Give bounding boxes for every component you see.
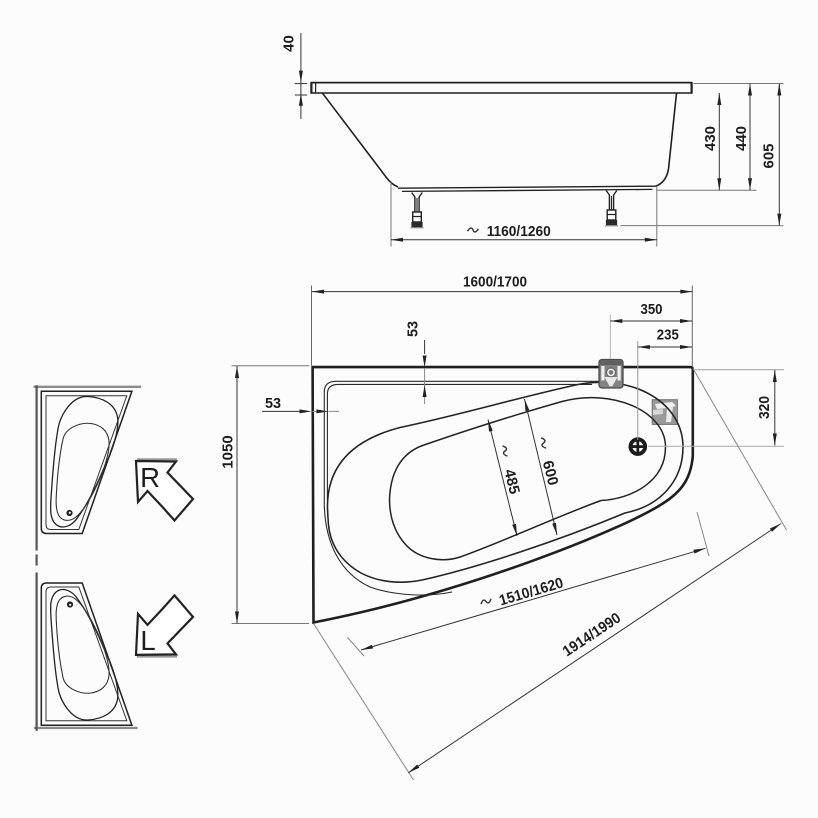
svg-text:R: R — [140, 462, 160, 493]
svg-text:1160/1260: 1160/1260 — [487, 223, 551, 240]
svg-text:605: 605 — [761, 143, 778, 168]
svg-text:1050: 1050 — [220, 435, 237, 468]
svg-text:53: 53 — [265, 395, 281, 412]
svg-text:235: 235 — [657, 327, 679, 344]
svg-text:1600/1700: 1600/1700 — [463, 274, 527, 291]
svg-text:L: L — [140, 625, 155, 656]
svg-text:440: 440 — [733, 126, 750, 151]
svg-text:430: 430 — [702, 126, 719, 151]
svg-text:320: 320 — [756, 396, 773, 419]
svg-text:40: 40 — [281, 35, 298, 52]
svg-text:350: 350 — [641, 301, 663, 318]
svg-text:53: 53 — [405, 321, 422, 337]
